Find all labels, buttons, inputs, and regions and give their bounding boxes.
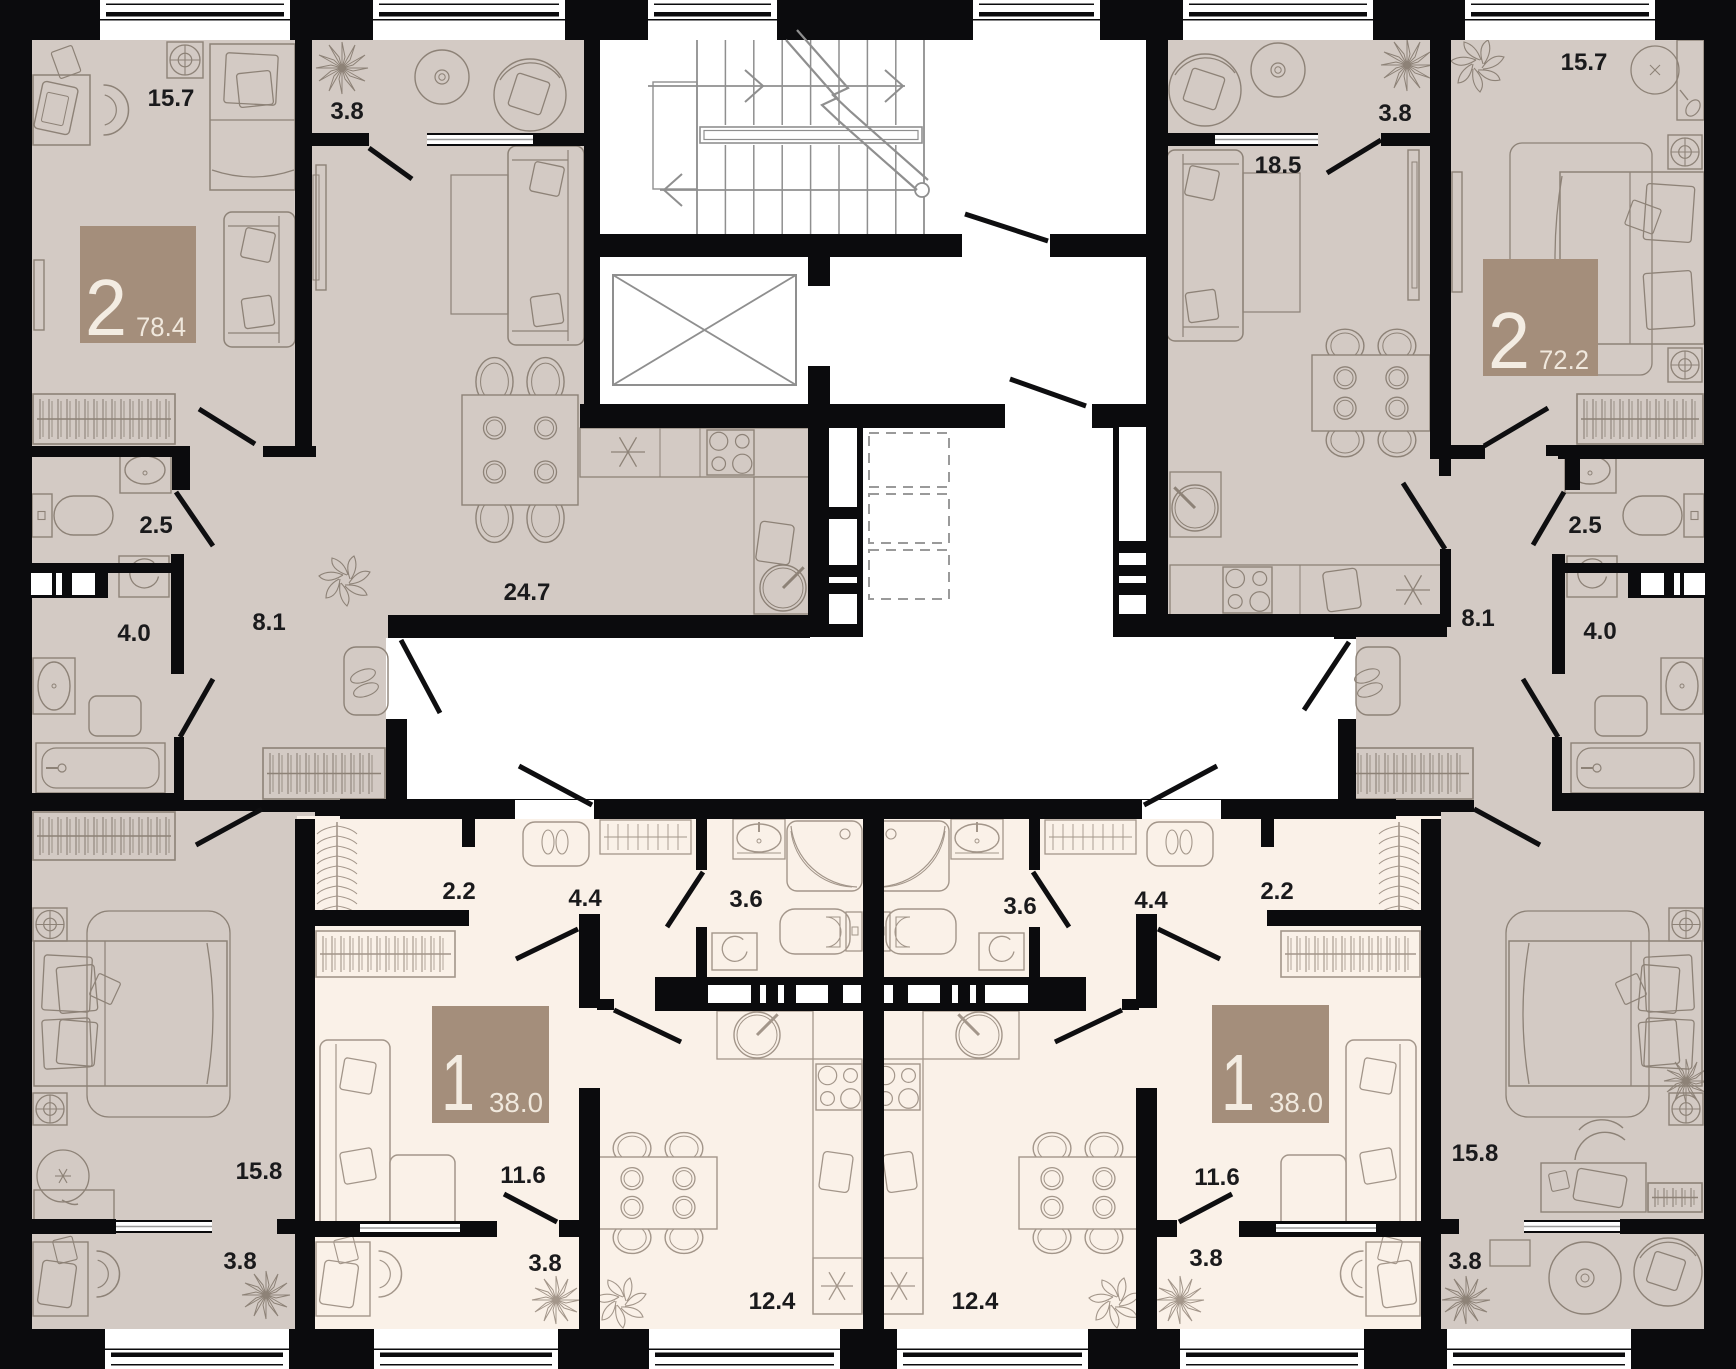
svg-text:2.5: 2.5	[139, 512, 172, 539]
svg-text:2: 2	[85, 263, 127, 352]
svg-text:1: 1	[1221, 1038, 1255, 1127]
svg-text:4.4: 4.4	[1134, 887, 1168, 914]
svg-text:4.0: 4.0	[1583, 618, 1616, 645]
svg-text:3.8: 3.8	[1189, 1245, 1222, 1272]
svg-text:38.0: 38.0	[489, 1087, 543, 1118]
svg-text:8.1: 8.1	[1461, 605, 1494, 632]
svg-text:2.2: 2.2	[1260, 878, 1293, 905]
svg-text:11.6: 11.6	[500, 1162, 545, 1189]
svg-text:12.4: 12.4	[749, 1288, 796, 1315]
svg-text:15.7: 15.7	[1561, 49, 1608, 76]
svg-text:3.8: 3.8	[528, 1250, 561, 1277]
svg-text:15.8: 15.8	[236, 1158, 283, 1185]
svg-text:18.5: 18.5	[1255, 152, 1302, 179]
svg-text:11.6: 11.6	[1194, 1164, 1239, 1191]
svg-text:2.2: 2.2	[442, 878, 475, 905]
svg-text:78.4: 78.4	[136, 312, 186, 342]
svg-text:3.8: 3.8	[223, 1248, 256, 1275]
svg-text:4.0: 4.0	[117, 620, 150, 647]
svg-text:3.8: 3.8	[330, 98, 363, 125]
svg-text:3.8: 3.8	[1448, 1248, 1481, 1275]
svg-text:15.7: 15.7	[148, 85, 195, 112]
svg-text:72.2: 72.2	[1539, 345, 1589, 375]
svg-text:4.4: 4.4	[568, 885, 602, 912]
svg-text:3.6: 3.6	[1003, 893, 1036, 920]
svg-text:3.6: 3.6	[729, 886, 762, 913]
svg-text:38.0: 38.0	[1269, 1087, 1323, 1118]
svg-text:2.5: 2.5	[1568, 512, 1601, 539]
svg-text:24.7: 24.7	[504, 579, 551, 606]
svg-text:1: 1	[441, 1038, 475, 1127]
svg-text:8.1: 8.1	[252, 609, 285, 636]
svg-text:12.4: 12.4	[952, 1288, 999, 1315]
svg-text:15.8: 15.8	[1452, 1140, 1499, 1167]
svg-text:2: 2	[1488, 296, 1530, 385]
svg-text:3.8: 3.8	[1378, 100, 1411, 127]
